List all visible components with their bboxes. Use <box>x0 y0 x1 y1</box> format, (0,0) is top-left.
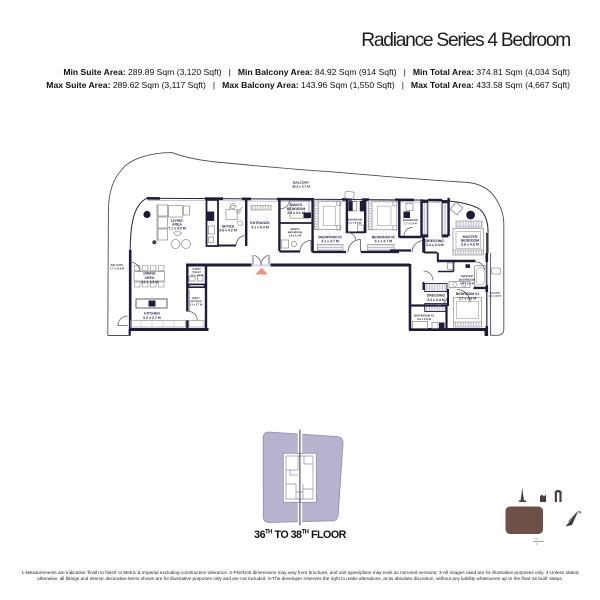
svg-text:1.7 x 12.6 M: 1.7 x 12.6 M <box>110 267 124 270</box>
svg-text:KITCHEN: KITCHEN <box>144 311 160 315</box>
svg-text:BEDROOM 01: BEDROOM 01 <box>456 292 479 296</box>
svg-text:2.1 x 2.7 M: 2.1 x 2.7 M <box>190 303 203 306</box>
svg-text:BALCONY: BALCONY <box>490 292 501 295</box>
svg-text:4.8 x 2.6 M: 4.8 x 2.6 M <box>460 281 475 285</box>
svg-text:DINING: DINING <box>143 271 156 275</box>
svg-text:1.2 x 12.6 M: 1.2 x 12.6 M <box>489 296 501 298</box>
svg-text:DRESSING: DRESSING <box>427 294 446 298</box>
svg-text:3.1 x 6.0 M: 3.1 x 6.0 M <box>251 225 269 229</box>
svg-text:3.1 x 4.7 M: 3.1 x 4.7 M <box>321 239 339 243</box>
svg-text:7.1 x 4.2 M: 7.1 x 4.2 M <box>168 226 186 230</box>
svg-text:2.8 x 3.1 M: 2.8 x 3.1 M <box>287 211 305 215</box>
svg-text:5.6 x 5.6 M: 5.6 x 5.6 M <box>461 242 479 246</box>
svg-text:2.4 x 2.4 M: 2.4 x 2.4 M <box>426 243 444 247</box>
svg-text:3.7 x 5.6 M: 3.7 x 5.6 M <box>459 296 477 300</box>
svg-text:ENTRANCE: ENTRANCE <box>250 221 270 225</box>
svg-text:3.4 x 2.4 M: 3.4 x 2.4 M <box>427 298 445 302</box>
svg-text:1.7 x 2.5 M: 1.7 x 2.5 M <box>349 222 362 225</box>
svg-text:5.2 x 2.7 M: 5.2 x 2.7 M <box>143 316 161 320</box>
svg-text:3.6 x 4.2 M: 3.6 x 4.2 M <box>219 228 237 232</box>
svg-text:AREA: AREA <box>145 276 155 280</box>
svg-text:3.1 x 4.7 M: 3.1 x 4.7 M <box>375 239 393 243</box>
svg-text:36.6 x 2.7 M: 36.6 x 2.7 M <box>292 185 310 189</box>
svg-text:1.6 x 1.9 M: 1.6 x 1.9 M <box>190 274 203 277</box>
svg-text:1.7 x 2.5 M: 1.7 x 2.5 M <box>404 222 417 225</box>
svg-text:N: N <box>579 510 582 515</box>
svg-text:3.4 x 2.6 M: 3.4 x 2.6 M <box>417 317 432 321</box>
svg-text:1.6 x 2.0 M: 1.6 x 2.0 M <box>289 234 302 237</box>
svg-text:3.1 x 3.2 M: 3.1 x 3.2 M <box>141 280 159 284</box>
